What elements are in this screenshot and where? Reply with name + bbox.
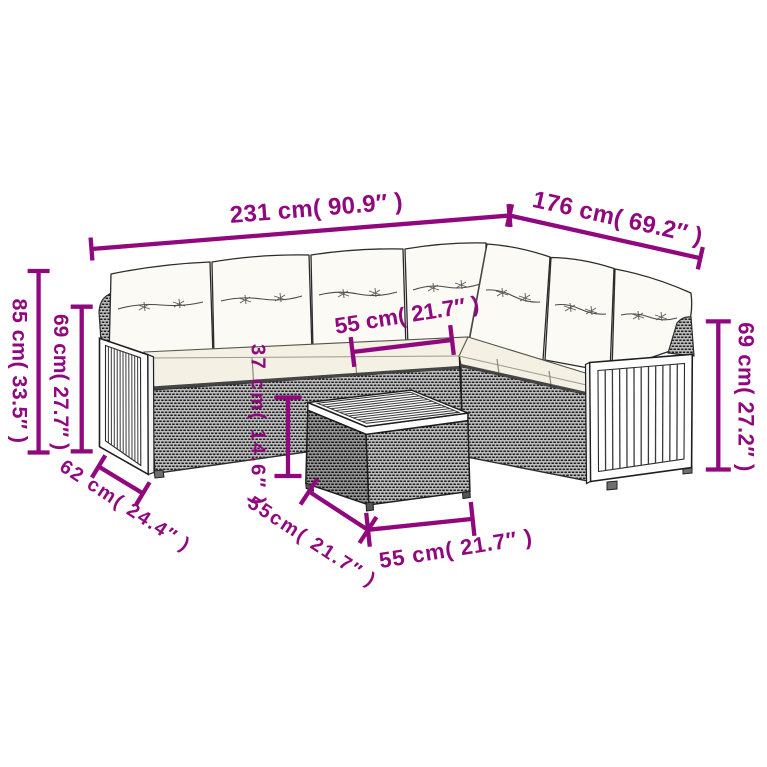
svg-text:69 cm( 27.2″ ): 69 cm( 27.2″ )	[734, 322, 759, 472]
svg-text:37 cm( 14.6″ ): 37 cm( 14.6″ )	[247, 344, 270, 506]
svg-text:85 cm( 33.5″ ): 85 cm( 33.5″ )	[8, 299, 32, 444]
svg-text:69 cm( 27.7″ ): 69 cm( 27.7″ )	[49, 314, 72, 450]
